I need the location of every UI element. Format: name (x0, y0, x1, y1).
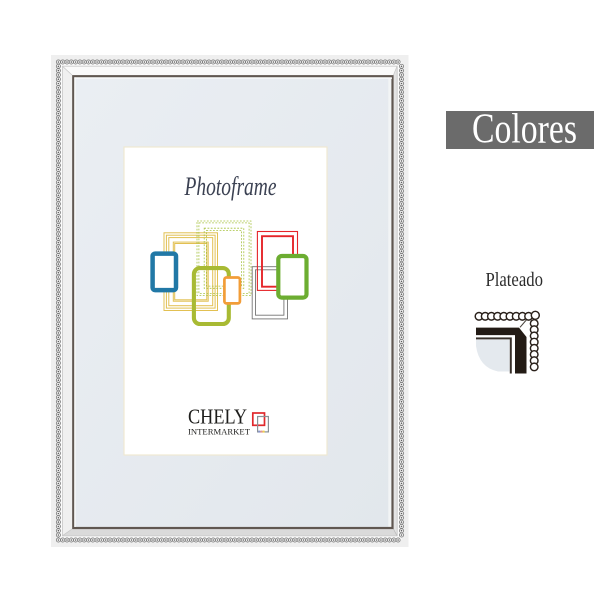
svg-text:Plateado: Plateado (485, 269, 543, 291)
svg-text:INTERMARKET: INTERMARKET (188, 426, 251, 436)
svg-text:Colores: Colores (472, 107, 577, 153)
svg-text:CHELY: CHELY (188, 405, 247, 429)
svg-text:Photoframe: Photoframe (184, 172, 277, 201)
